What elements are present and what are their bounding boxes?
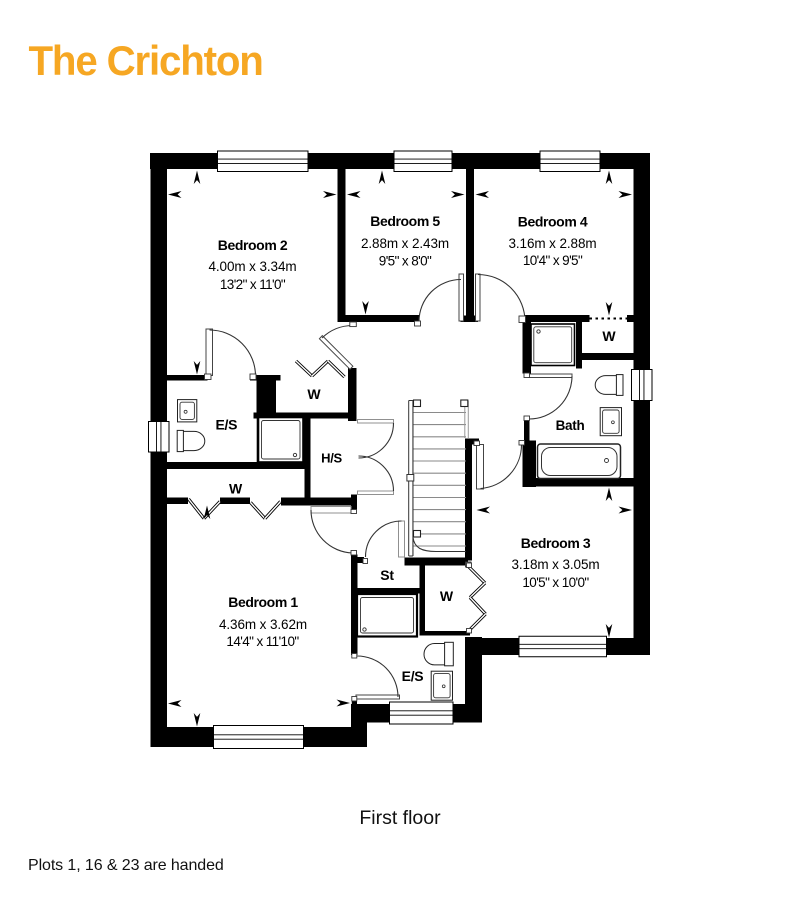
svg-text:10'5" x 10'0": 10'5" x 10'0" [522, 575, 589, 590]
svg-text:Plots 1, 16 & 23 are handed: Plots 1, 16 & 23 are handed [28, 857, 224, 874]
svg-text:3.18m x 3.05m: 3.18m x 3.05m [512, 557, 600, 572]
svg-text:4.36m x 3.62m: 4.36m x 3.62m [219, 617, 307, 632]
svg-text:4.00m x 3.34m: 4.00m x 3.34m [209, 259, 297, 274]
svg-text:Bedroom 3: Bedroom 3 [521, 535, 591, 551]
svg-text:Bedroom 5: Bedroom 5 [370, 213, 440, 229]
svg-text:9'5" x 8'0": 9'5" x 8'0" [379, 254, 432, 269]
svg-text:W: W [229, 481, 243, 497]
svg-text:Bedroom 1: Bedroom 1 [228, 594, 298, 610]
svg-text:W: W [307, 386, 321, 402]
svg-text:10'4" x 9'5": 10'4" x 9'5" [523, 253, 583, 268]
svg-text:H/S: H/S [321, 451, 342, 466]
svg-text:14'4" x 11'10": 14'4" x 11'10" [226, 634, 299, 649]
svg-text:13'2" x 11'0": 13'2" x 11'0" [220, 277, 286, 292]
svg-text:Bath: Bath [556, 418, 585, 433]
svg-text:Bedroom 4: Bedroom 4 [518, 214, 588, 230]
svg-text:First floor: First floor [359, 807, 441, 829]
svg-text:E/S: E/S [402, 668, 424, 684]
svg-text:The Crichton: The Crichton [29, 37, 263, 84]
svg-text:W: W [602, 328, 616, 344]
svg-text:Bedroom 2: Bedroom 2 [218, 237, 288, 253]
svg-text:3.16m x 2.88m: 3.16m x 2.88m [509, 236, 597, 251]
svg-text:St: St [380, 567, 394, 583]
svg-text:2.88m x 2.43m: 2.88m x 2.43m [361, 236, 449, 251]
svg-text:W: W [440, 588, 454, 604]
svg-text:E/S: E/S [215, 417, 237, 433]
